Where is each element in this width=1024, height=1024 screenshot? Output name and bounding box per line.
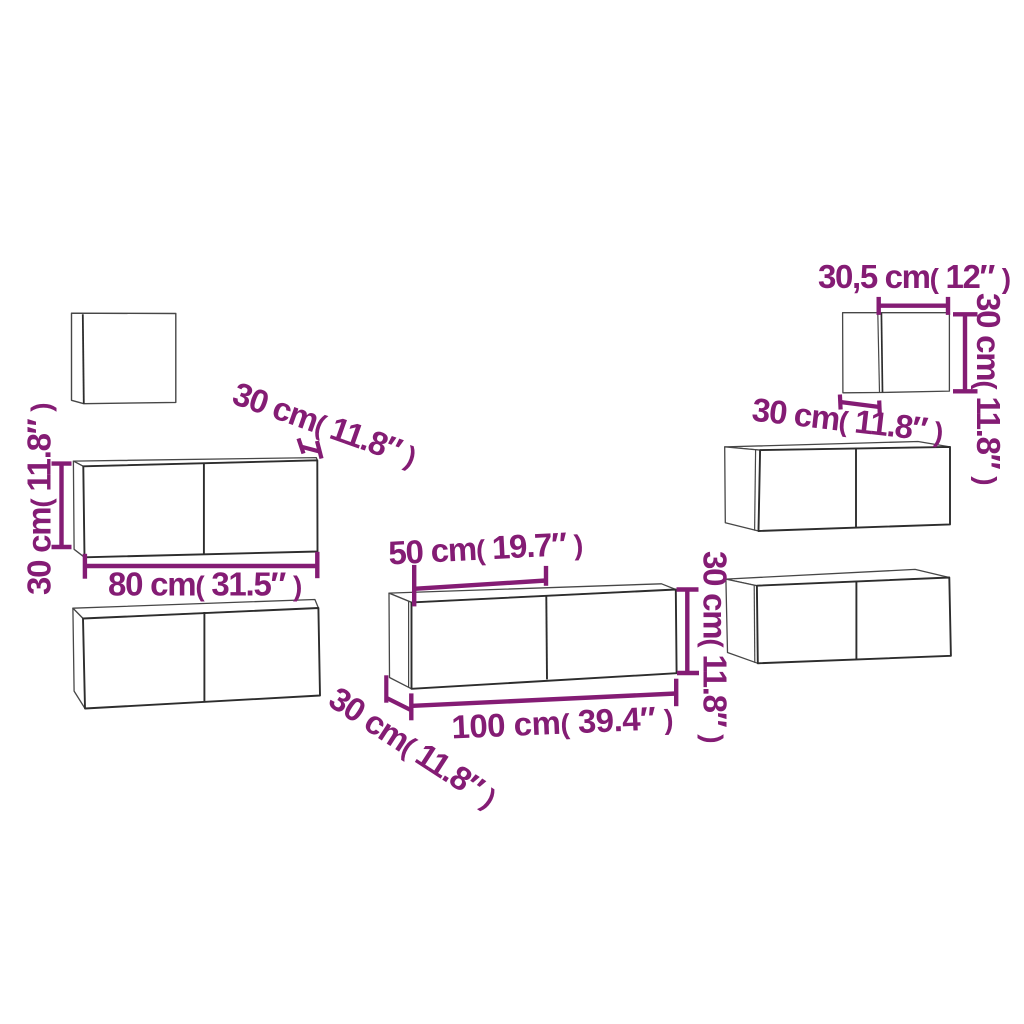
svg-text:30 cm( 11.8″ ): 30 cm( 11.8″ ) (697, 551, 734, 742)
svg-text:30 cm( 11.8″ ): 30 cm( 11.8″ ) (21, 404, 58, 595)
svg-text:80 cm( 31.5″ ): 80 cm( 31.5″ ) (108, 566, 301, 603)
svg-text:30,5 cm( 12″ ): 30,5 cm( 12″ ) (818, 258, 1010, 295)
svg-text:30 cm( 11.8″ ): 30 cm( 11.8″ ) (970, 293, 1007, 484)
